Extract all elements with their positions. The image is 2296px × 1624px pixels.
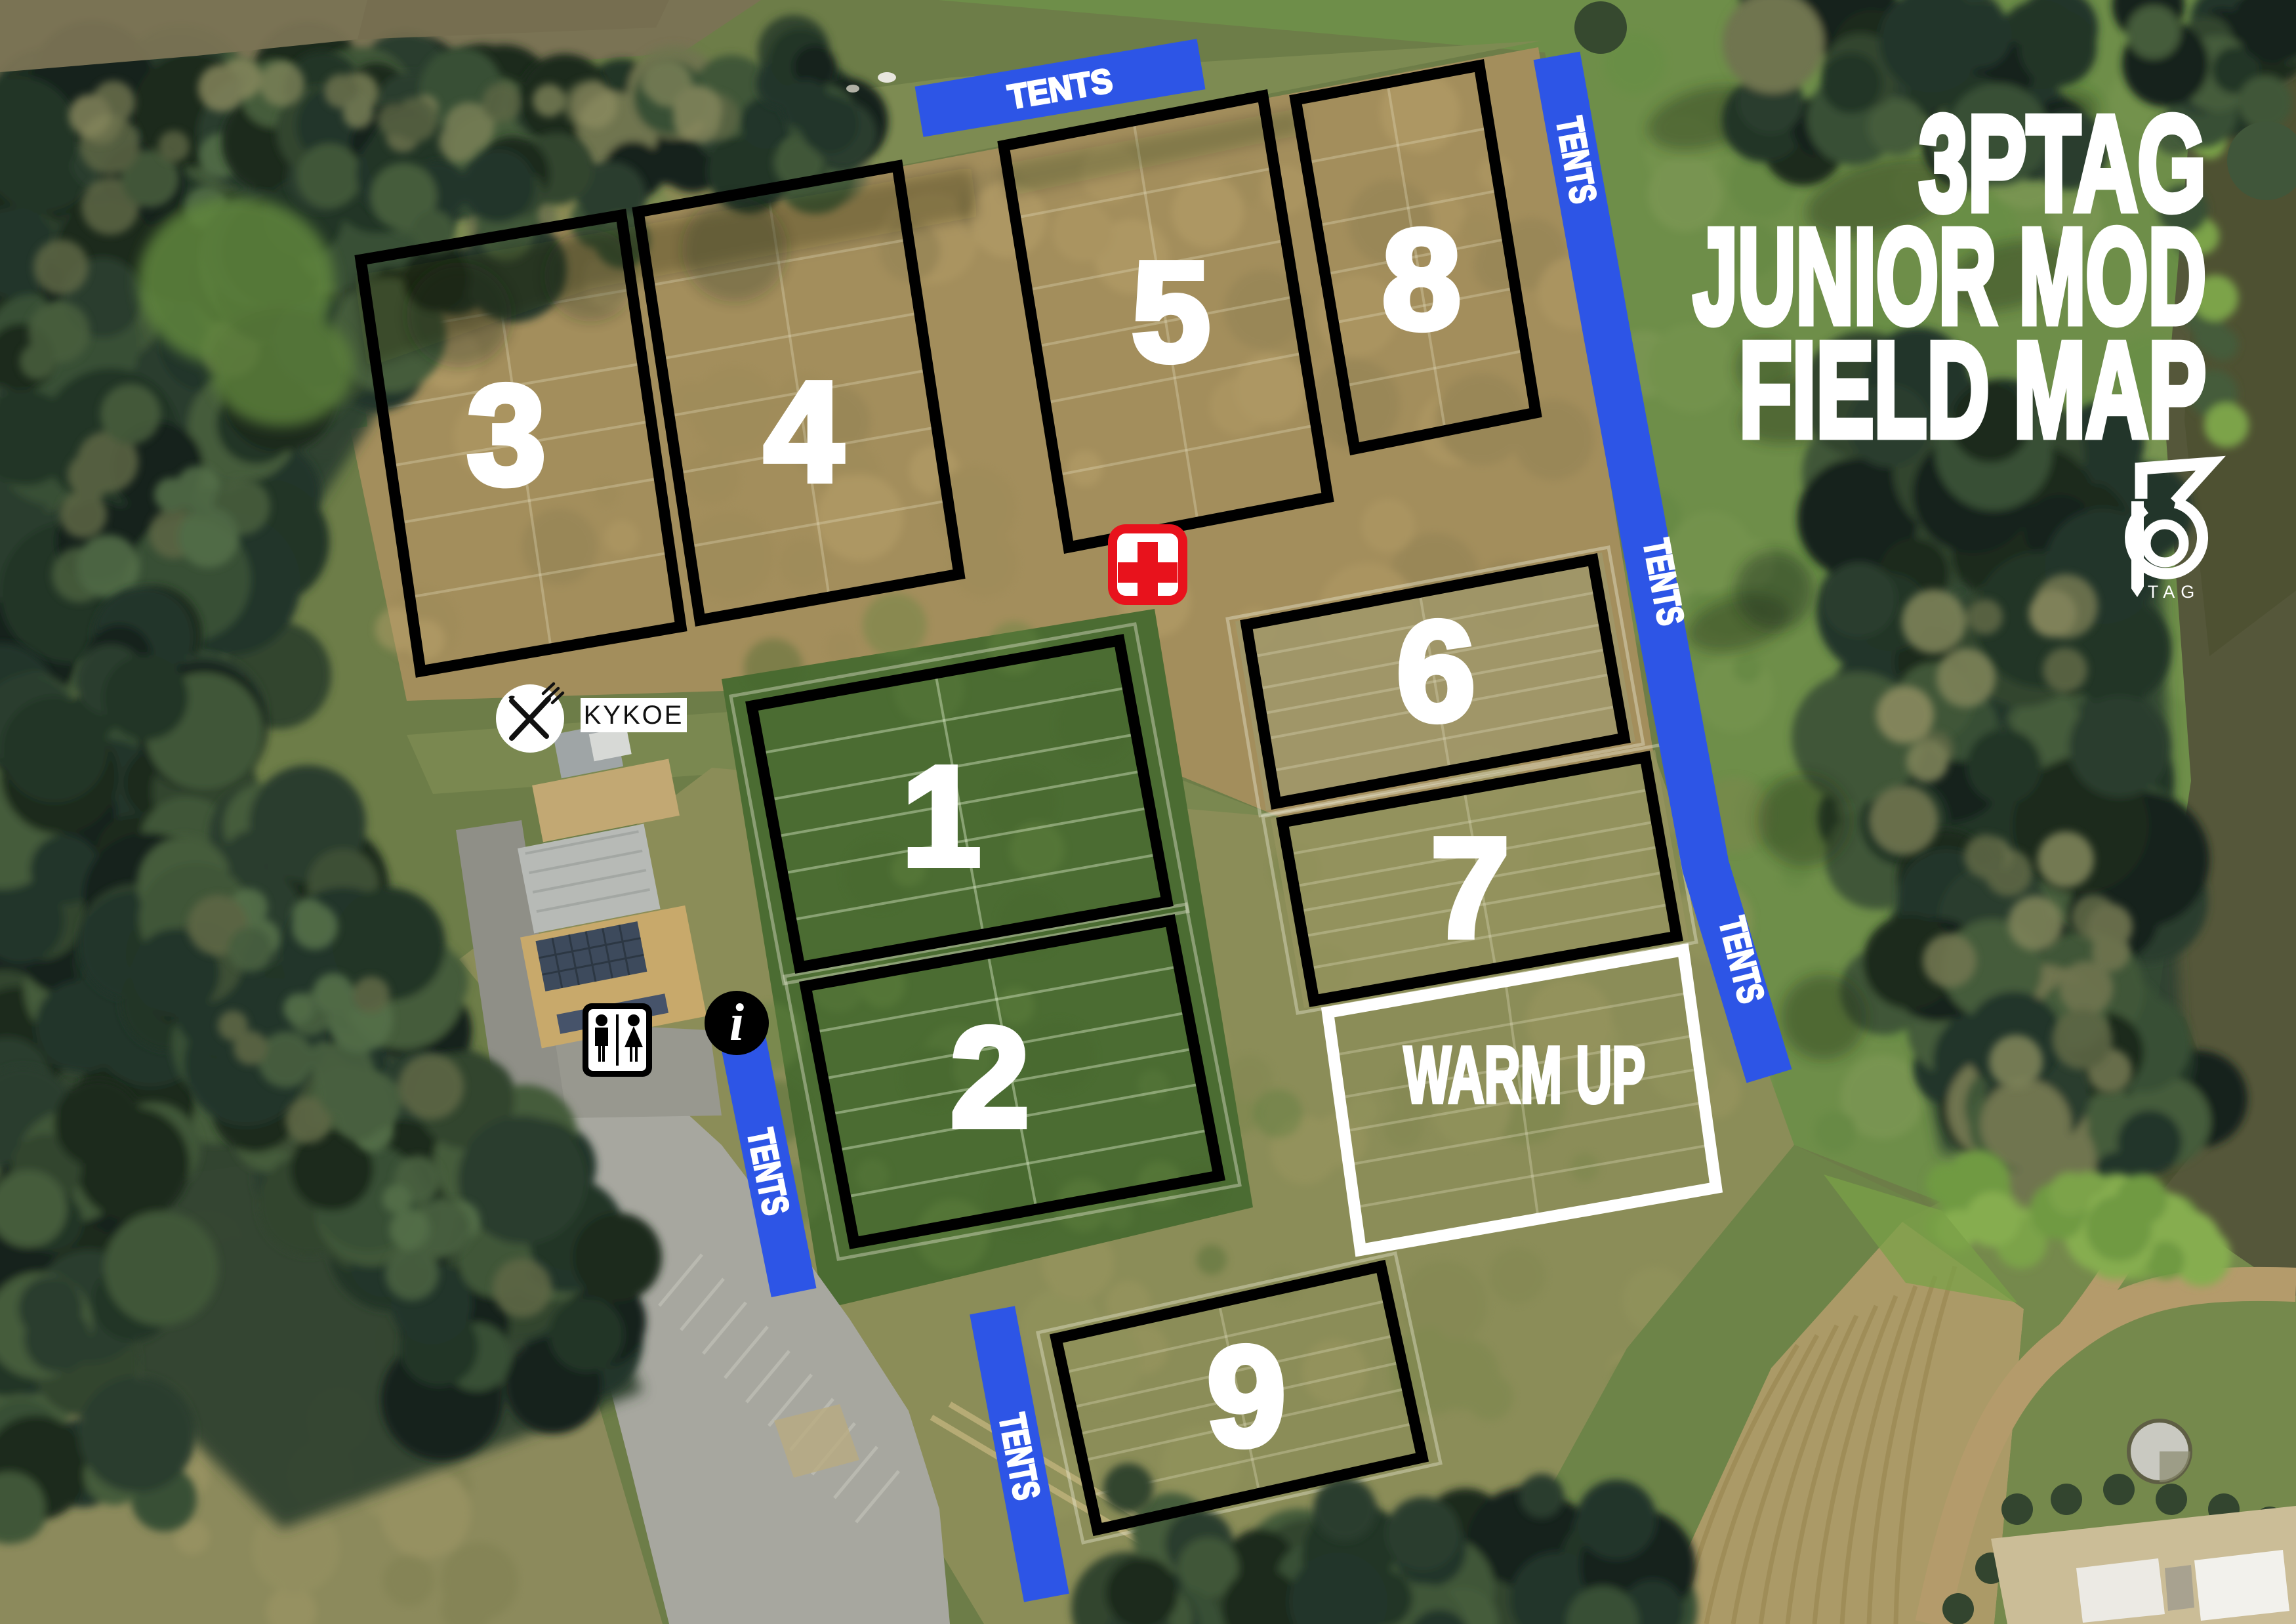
svg-text:3: 3 bbox=[467, 356, 546, 514]
svg-text:FIELD MAP: FIELD MAP bbox=[1739, 314, 2206, 465]
svg-text:8: 8 bbox=[1382, 200, 1461, 358]
svg-text:2: 2 bbox=[951, 998, 1029, 1156]
svg-text:7: 7 bbox=[1431, 808, 1509, 967]
svg-text:4: 4 bbox=[764, 352, 843, 510]
svg-text:1: 1 bbox=[902, 737, 981, 895]
svg-text:6: 6 bbox=[1397, 592, 1475, 750]
svg-text:9: 9 bbox=[1207, 1317, 1286, 1475]
svg-text:5: 5 bbox=[1132, 232, 1210, 390]
svg-text:TAG: TAG bbox=[2148, 582, 2201, 602]
svg-text:KYKOE: KYKOE bbox=[584, 701, 684, 730]
svg-text:i: i bbox=[729, 994, 744, 1052]
svg-text:WARM UP: WARM UP bbox=[1404, 1030, 1645, 1119]
